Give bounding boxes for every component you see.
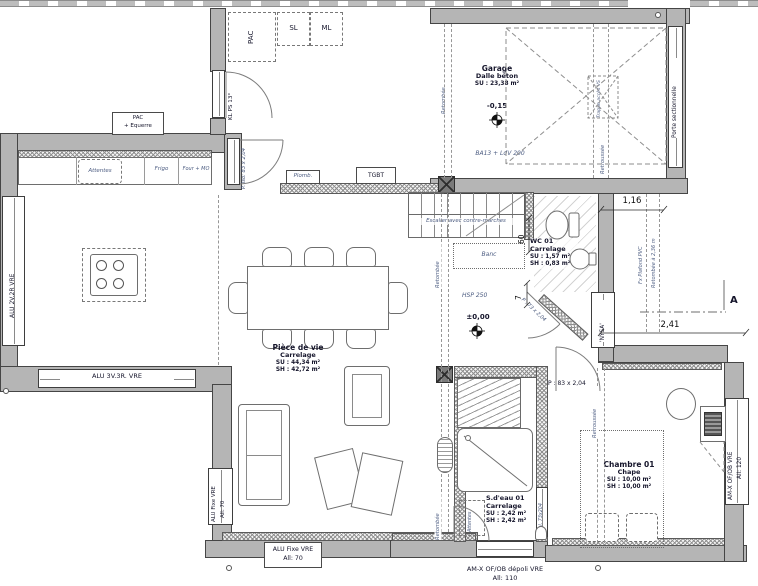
wc-su: SU : 1,57 m² <box>530 254 578 262</box>
garage-retroussee-dash-1 <box>593 24 594 178</box>
pac-unit-label: PAC <box>247 22 256 52</box>
dining-chair-6 <box>346 329 376 349</box>
bath-attentes-label: Attentes <box>468 504 474 532</box>
garage-retroussee-label: Retroussée <box>600 122 607 174</box>
washer-label: ML <box>310 24 343 33</box>
wall-cellier-left-lower <box>210 118 226 135</box>
wall-wc-right <box>598 178 614 294</box>
garage-room-label: Garage Dalle béton SU : 23,38 m² <box>452 64 542 88</box>
bedroom-retroussee-dash-2 <box>604 368 605 543</box>
oven-label: Four + MO <box>178 166 214 172</box>
dining-chair-1 <box>262 247 292 267</box>
window-kitchen-front-label: ALU 3V.3R. VRE <box>60 372 174 380</box>
cooktop-burner-3 <box>96 278 107 289</box>
living-hsp-note: HSP 250 <box>462 292 487 300</box>
window-kitchen-side-label: ALU 2V.2R VRE <box>9 228 17 318</box>
dim-116-label: 1,16 <box>616 196 648 206</box>
garage-retombee-dash-2 <box>451 24 452 178</box>
bath-room-label: S.d'eau 01 Carrelage SU : 2,42 m² SH : 2… <box>486 495 536 526</box>
window-bath-bottom-label-1: AM-X OF/OB dépoli VRE <box>420 565 590 573</box>
dining-chair-3 <box>346 247 376 267</box>
window-nysa-label: 'NYSA' <box>600 300 607 342</box>
survey-point-3 <box>595 565 601 571</box>
plomb-label: Plomb. <box>286 173 320 180</box>
garage-retombee-dash-1 <box>444 24 445 178</box>
porch-dash-2 <box>659 194 660 332</box>
garage-ceiling-note: BA13 + LdV 200 <box>460 150 540 158</box>
column-bath-corner <box>436 366 453 383</box>
porch-retombee236-label: Retombée à 2,36 m <box>651 216 657 288</box>
window-bedroom-right-label-2: All: 120 <box>737 425 744 479</box>
survey-point-4 <box>655 12 661 18</box>
wall-garage-top <box>430 8 690 24</box>
roof-overhang-dashes-right <box>690 0 758 7</box>
bath-floor: Carrelage <box>486 503 536 511</box>
cooktop-burner-2 <box>113 260 124 271</box>
wc-room-label: WC 01 Carrelage SU : 1,57 m² SH : 0,83 m… <box>530 238 578 269</box>
garage-sectional-door-label: Porte sectionnelle <box>672 58 679 138</box>
level-marker-garage <box>489 112 505 128</box>
living-kitchen-dash <box>218 195 219 365</box>
dim-241-label: 2,41 <box>652 320 688 330</box>
dryer-label: SL <box>277 24 310 33</box>
garage-retroussee-dash-2 <box>608 24 609 178</box>
wall-bath-top <box>454 366 548 378</box>
window-bath-bottom-label-2: All: 110 <box>420 574 590 582</box>
survey-point-1 <box>3 388 9 394</box>
sofa-cushions <box>246 410 282 500</box>
wall-bedroom-top-insulation <box>602 363 722 370</box>
bed-pillow-1 <box>585 513 619 542</box>
cooktop-burner-1 <box>96 260 107 271</box>
fridge-label: Frigo <box>145 166 178 173</box>
trappe-label: Trappe accès VS <box>597 78 603 118</box>
wall-cellier-left-upper <box>210 8 226 72</box>
hall-retombee-dash-2 <box>448 194 449 532</box>
pac-equerre-label-1: PAC <box>112 115 164 122</box>
porch-fx-plafond-label: Fx Plafond PVC <box>638 222 644 284</box>
porch-dash-1 <box>646 194 647 332</box>
wc-floor-finish: Carrelage <box>530 246 578 254</box>
living-room-label: Pièce de vie Carrelage SU : 44,34 m² SH … <box>252 343 344 375</box>
staircase-label: Escalier avec contre-marches <box>410 218 522 225</box>
window-living-bottom-label-1: ALU Fixe VRE <box>264 546 322 554</box>
living-level: ±0,00 <box>463 313 493 321</box>
staircase <box>408 192 526 238</box>
door-entry-label: P. Iso: 83 x 2,04 <box>241 133 248 189</box>
bedroom-retroussee-label: Retroussée <box>592 386 599 438</box>
dim-7-label: 7 <box>514 286 523 300</box>
bench-label: Banc <box>453 251 525 259</box>
door-entry-gap <box>227 138 240 185</box>
bath-su: SU : 2,42 m² <box>486 511 536 519</box>
cooktop-burner-4 <box>113 278 124 289</box>
dining-table <box>247 266 389 330</box>
dining-chair-7 <box>228 282 248 314</box>
dim-60-label: 60 <box>517 224 526 244</box>
roof-overhang-dashes-left <box>0 0 628 7</box>
window-bath-bottom <box>476 541 534 557</box>
kitchen-counter-divider-1 <box>76 157 77 185</box>
kitchen-attentes-label: Attentes <box>78 168 122 175</box>
pac-equerre-label-2: + Equerre <box>112 123 164 130</box>
bath-sh: SH : 2,42 m² <box>486 518 536 526</box>
garage-su: SU : 23,38 m² <box>452 81 542 89</box>
living-sh: SH : 42,72 m² <box>252 367 344 375</box>
window-living-left-label-2: All: 70 <box>220 478 227 518</box>
level-marker-living <box>469 323 485 339</box>
dining-chair-8 <box>388 282 408 314</box>
window-living-left-label-1: ALU Fixe VRE <box>211 472 218 522</box>
column-garage-corner <box>438 176 455 193</box>
wc-sh: SH : 0,83 m² <box>530 261 578 269</box>
garage-truss-outline <box>506 28 666 164</box>
bath-closet <box>457 378 521 428</box>
window-living-bottom-label-2: All: 70 <box>264 555 322 563</box>
wall-bedroom-top <box>598 345 728 363</box>
tgbt-label: TGBT <box>356 172 396 180</box>
desk-dashed-lines <box>700 442 724 472</box>
hall-retombee-label-lower: Retombée <box>435 494 442 540</box>
door-cellier-gap <box>212 70 225 118</box>
floor-plan: ALU 2V.2R VRE ALU 3V.3R. VRE ALU Fixe VR… <box>0 0 758 586</box>
door-cellier-label: KL PS 13° <box>228 70 235 120</box>
wall-wc-right-stub <box>598 346 614 362</box>
window-bedroom-right-label-1: AM-X OF/OB VRE <box>728 404 735 500</box>
bedroom-door-label: P : 83 x 2,04 <box>548 380 586 388</box>
desk-laptop <box>704 412 722 436</box>
staircase-mid-line <box>408 214 526 215</box>
wc-door-arc <box>528 324 560 338</box>
hall-retombee-label-upper: Retombée <box>435 242 442 288</box>
armchair-seat <box>352 374 382 418</box>
bath-pedestal <box>535 526 547 540</box>
towel-radiator <box>437 437 453 473</box>
living-floor: Carrelage <box>252 352 344 360</box>
shower-tray <box>457 428 533 492</box>
bed-pillow-2 <box>626 513 658 542</box>
section-a-label: A <box>730 295 738 306</box>
desk-chair <box>666 388 696 420</box>
dining-chair-2 <box>304 247 334 267</box>
garage-floor: Dalle béton <box>452 73 542 81</box>
survey-point-2 <box>226 565 232 571</box>
pouf-2 <box>351 452 404 516</box>
garage-level: -0,15 <box>482 102 512 110</box>
